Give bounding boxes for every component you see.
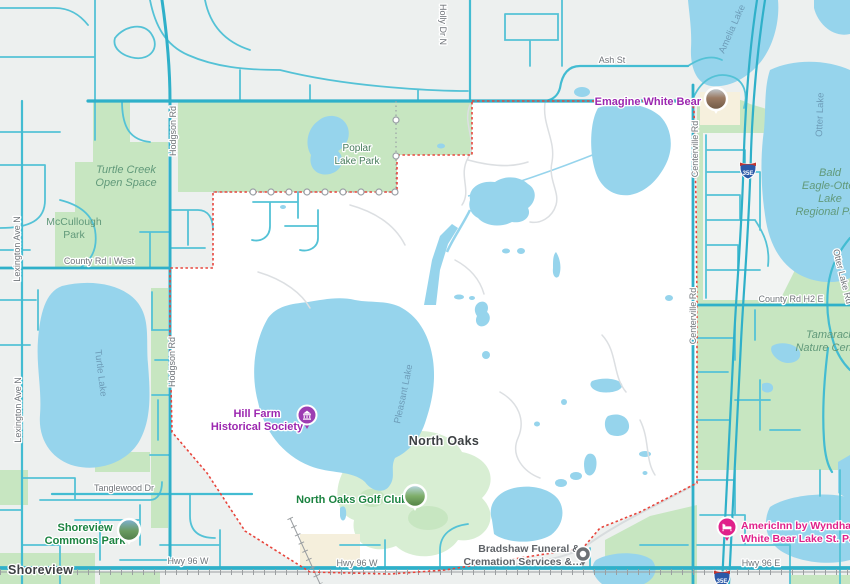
- pin-dot-icon: [580, 551, 586, 557]
- city-label-shoreview[interactable]: Shoreview: [8, 563, 73, 577]
- park-label-tamarack-1: Tamarack: [806, 329, 850, 341]
- pond: [665, 295, 673, 301]
- road-label-hodgson-n: Hodgson Rd: [168, 106, 178, 156]
- pond: [517, 248, 525, 254]
- poi-label-emagine[interactable]: Emagine White Bear: [595, 96, 702, 108]
- poi-label-bradshaw-1[interactable]: Bradshaw Funeral &: [478, 543, 580, 555]
- water-label-otter: Otter Lake: [814, 92, 827, 137]
- road-label-hwy96w-2: Hwy 96 W: [336, 558, 378, 568]
- pond: [469, 296, 475, 300]
- road-label-centerville-s: Centerville Rd: [688, 288, 698, 345]
- pond: [534, 422, 540, 427]
- lake-bottom-center: [491, 487, 563, 542]
- road-label-hodgson-s: Hodgson Rd: [167, 337, 177, 387]
- pond: [555, 479, 567, 487]
- pond: [643, 471, 648, 475]
- pond: [502, 249, 510, 254]
- poi-label-hill-farm-2[interactable]: Historical Society: [211, 421, 304, 433]
- green-bottom-right-strip: [790, 575, 850, 584]
- map-canvas[interactable]: Ash St Holly Dr N Hodgson Rd Hodgson Rd …: [0, 0, 850, 584]
- golf-grove-1: [408, 506, 448, 530]
- park-label-bald-eagle-1: Bald: [819, 167, 842, 179]
- poi-label-commons-2[interactable]: Commons Park: [45, 535, 127, 547]
- pond: [437, 144, 445, 149]
- road-label-county-h2: County Rd H2 E: [758, 294, 823, 304]
- road-label-hwy96w-1: Hwy 96 W: [167, 556, 209, 566]
- park-label-mccullough-1: McCullough: [46, 216, 102, 228]
- pond-wilkinson: [469, 177, 534, 225]
- road-label-lexington-n: Lexington Ave N: [12, 216, 22, 281]
- city-label-north-oaks[interactable]: North Oaks: [409, 434, 479, 448]
- pond: [454, 295, 464, 300]
- green-shoreview-1: [0, 470, 28, 505]
- turtle-lake: [38, 283, 150, 468]
- pond: [340, 506, 346, 520]
- park-label-tamarack-2: Nature Center: [795, 342, 850, 354]
- road-label-tanglewood: Tanglewood Dr: [94, 483, 154, 493]
- park-label-turtle-creek-1: Turtle Creek: [96, 164, 156, 176]
- park-label-bald-eagle-3: Lake: [818, 193, 842, 205]
- park-label-poplar-2: Lake Park: [334, 156, 380, 167]
- park-label-poplar-1: Poplar: [343, 143, 373, 154]
- interstate-35e-shield-south: 35E: [714, 571, 730, 584]
- poi-label-commons-1[interactable]: Shoreview: [57, 522, 112, 534]
- road-label-centerville-n: Centerville Rd: [690, 121, 700, 178]
- poi-label-bradshaw-2[interactable]: Cremation Services &…: [463, 556, 582, 568]
- poi-label-americinn-1[interactable]: AmericInn by Wyndham: [741, 520, 850, 532]
- road-label-hwy96e: Hwy 96 E: [742, 558, 781, 568]
- park-label-turtle-creek-2: Open Space: [95, 177, 156, 189]
- park-label-bald-eagle-4: Regional Park: [795, 206, 850, 218]
- poi-label-americinn-2[interactable]: White Bear Lake St. Paul: [741, 533, 850, 545]
- pond: [570, 472, 582, 480]
- road-label-lexington-s: Lexington Ave N: [13, 377, 23, 442]
- pond: [280, 205, 286, 209]
- pond: [574, 87, 590, 97]
- park-label-mccullough-2: Park: [63, 229, 85, 241]
- poi-label-golf[interactable]: North Oaks Golf Club: [296, 494, 408, 506]
- map-stage: Ash St Holly Dr N Hodgson Rd Hodgson Rd …: [0, 0, 850, 584]
- road-label-county-i: County Rd I West: [64, 256, 135, 266]
- road-label-ash: Ash St: [599, 55, 626, 65]
- shield-label: 35E: [743, 171, 754, 177]
- poi-label-hill-farm-1[interactable]: Hill Farm: [233, 408, 280, 420]
- park-label-bald-eagle-2: Eagle-Otter: [802, 180, 850, 192]
- pond: [482, 351, 490, 359]
- green-shoreview-3: [100, 572, 160, 584]
- shield-label: 35E: [717, 579, 728, 584]
- road-label-holly: Holly Dr N: [438, 4, 448, 45]
- pond: [561, 399, 567, 405]
